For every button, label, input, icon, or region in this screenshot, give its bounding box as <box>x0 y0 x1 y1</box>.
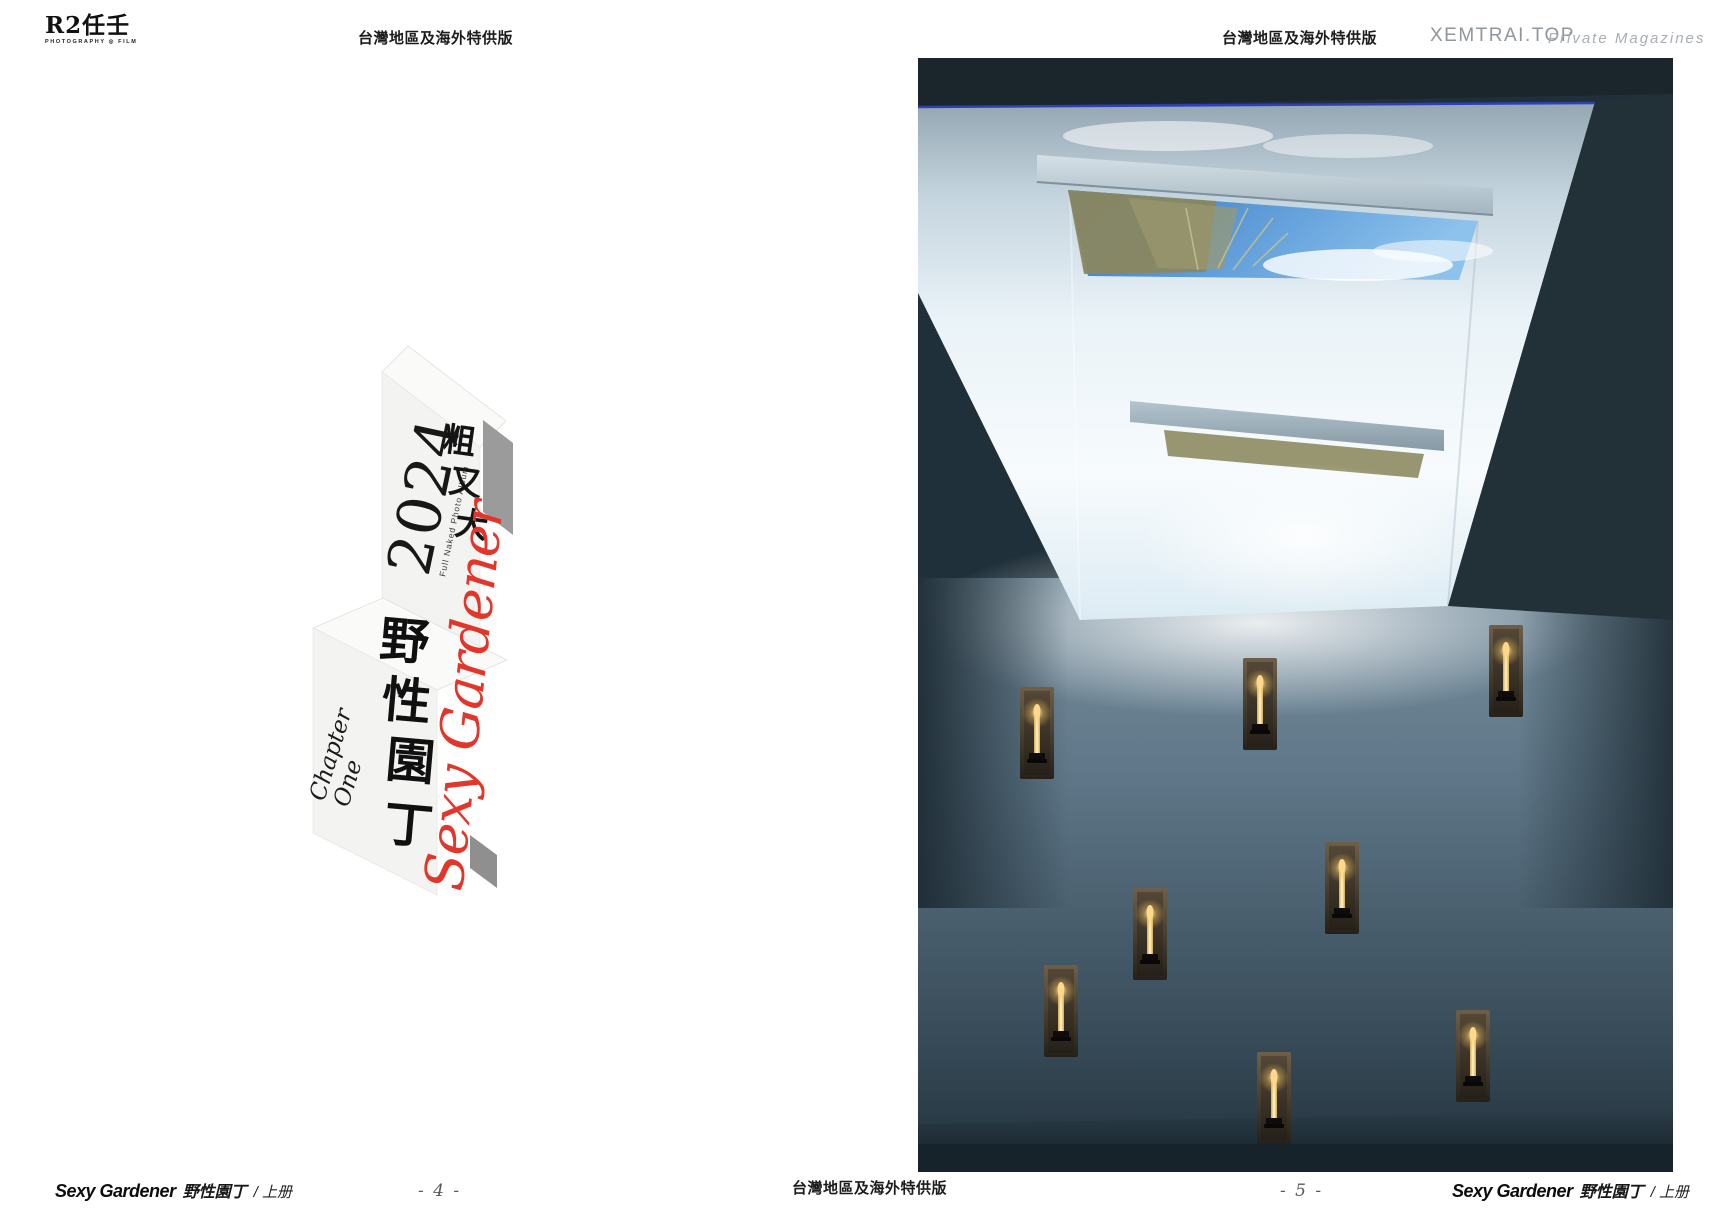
main-title-char-2: 性 <box>380 673 434 731</box>
footer-book-title-en: Sexy Gardener <box>55 1181 176 1201</box>
publisher-logo-subtext: PHOTOGRAPHY ◎ FILM <box>45 39 185 45</box>
candle-sconce-1 <box>1020 687 1054 779</box>
header-site-tagline: Private Magazines <box>1548 30 1705 47</box>
candle-sconce-6 <box>1044 965 1078 1057</box>
main-title-char-3: 園 <box>384 733 438 791</box>
footer-volume-label: / 上册 <box>254 1184 292 1201</box>
header-edition-right: 台灣地區及海外特供版 <box>1222 27 1377 48</box>
candle-sconce-3 <box>1489 625 1523 717</box>
footer-book-title-right: Sexy Gardener 野性園丁 / 上册 <box>1452 1178 1689 1202</box>
candle-sconce-5 <box>1133 888 1167 980</box>
spread-photo <box>918 58 1673 1172</box>
footer-book-title-left: Sexy Gardener 野性園丁 / 上册 <box>55 1178 292 1202</box>
candle-sconce-4 <box>1325 842 1359 934</box>
footer-book-title-cn: 野性園丁 <box>183 1184 247 1201</box>
footer-book-title-cn: 野性園丁 <box>1580 1184 1644 1201</box>
candle-sconce-7 <box>1257 1052 1291 1144</box>
tagline-char-1: 粗 <box>441 420 479 461</box>
header-edition-left: 台灣地區及海外特供版 <box>358 27 513 48</box>
candle-sconce-2 <box>1243 658 1277 750</box>
main-title-char-1: 野 <box>378 613 432 671</box>
sky-cloud <box>1373 240 1493 262</box>
wall-right-shadow <box>1518 578 1673 908</box>
floor <box>918 1144 1673 1172</box>
candle-sconce-8 <box>1456 1010 1490 1102</box>
light-bloom <box>1138 463 1468 613</box>
page-number-left: - 4 - <box>418 1181 461 1201</box>
page-number-right: - 5 - <box>1280 1181 1323 1201</box>
publisher-logo-text: R2任壬 <box>45 14 185 37</box>
cloud-reflection <box>1063 121 1273 151</box>
chapter-title-block: 2024 Full Naked Photo Album 粗 又 大 Sexy G… <box>262 330 542 910</box>
footer-book-title-en: Sexy Gardener <box>1452 1181 1573 1201</box>
cloud-reflection <box>1263 134 1433 158</box>
footer-edition-center: 台灣地區及海外特供版 <box>792 1177 947 1198</box>
main-title-char-4: 丁 <box>382 797 436 855</box>
footer-volume-label: / 上册 <box>1651 1184 1689 1201</box>
publisher-logo: R2任壬 PHOTOGRAPHY ◎ FILM <box>45 14 185 45</box>
